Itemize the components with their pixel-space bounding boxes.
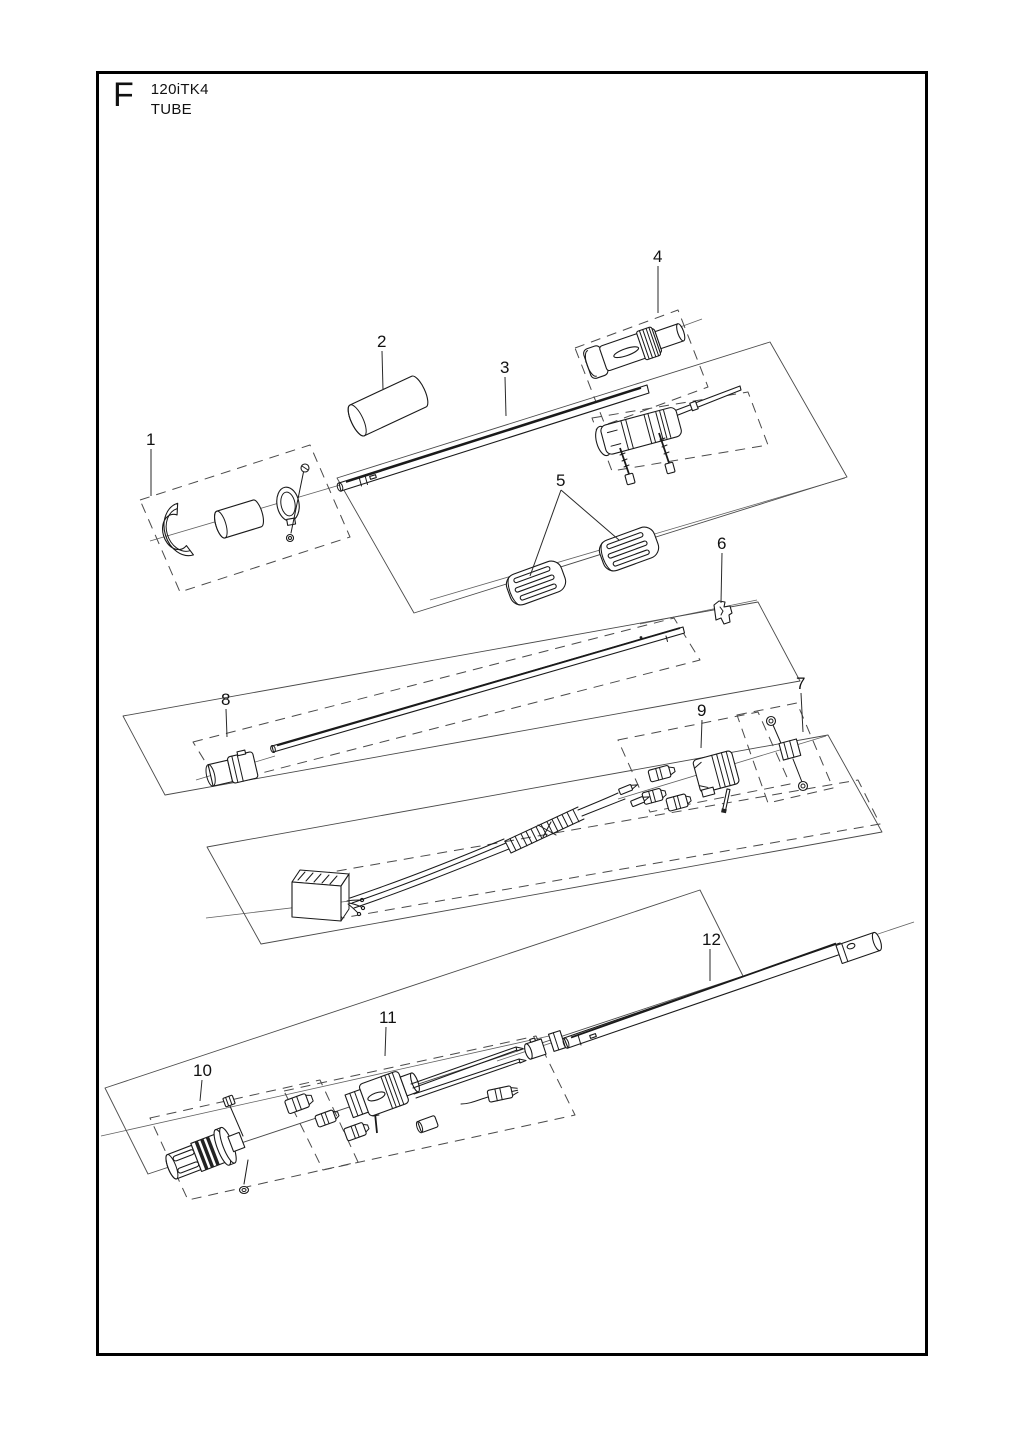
callout-12: 12 <box>702 930 721 949</box>
part-7-fastener-group <box>767 717 808 791</box>
callout-10-leader <box>200 1080 202 1101</box>
group-outlines <box>105 342 882 1174</box>
callout-8: 8 <box>221 690 230 709</box>
part-1-hanger-group <box>156 464 309 562</box>
callout-3: 3 <box>500 358 509 377</box>
callout-3-leader <box>505 377 506 416</box>
callout-4: 4 <box>653 247 662 266</box>
exploded-view-diagram: 1 2 3 4 5 6 7 8 9 10 11 12 <box>0 0 1024 1435</box>
callouts: 1 2 3 4 5 6 7 8 9 10 11 12 <box>146 247 805 1101</box>
callout-11-leader <box>385 1027 386 1056</box>
callout-8-leader <box>226 709 227 737</box>
callout-2: 2 <box>377 332 386 351</box>
callout-10: 10 <box>193 1061 212 1080</box>
part-11-connector-kit <box>284 1047 526 1141</box>
part-10-boundary <box>150 1080 358 1200</box>
part-12-tube <box>522 931 883 1060</box>
part-2-sleeve <box>345 374 432 439</box>
part-6-clip <box>714 601 732 624</box>
callout-9: 9 <box>697 701 706 720</box>
parts-diagram-page: F 120iTK4 TUBE <box>0 0 1024 1435</box>
callout-2-leader <box>382 351 383 390</box>
axis-lines <box>101 319 914 1136</box>
cable-assembly <box>292 782 650 921</box>
part-10-coupler-group <box>161 1095 248 1193</box>
callout-7: 7 <box>796 674 805 693</box>
part-5-grips <box>503 524 661 608</box>
callout-6-leader <box>721 553 722 603</box>
callout-11: 11 <box>379 1008 397 1027</box>
callout-9-leader <box>701 720 702 748</box>
callout-5: 5 <box>556 471 565 490</box>
part-4-coupler <box>582 317 689 380</box>
part-8-tube-group <box>203 627 685 789</box>
callout-1: 1 <box>146 430 155 449</box>
callout-6: 6 <box>717 534 726 553</box>
